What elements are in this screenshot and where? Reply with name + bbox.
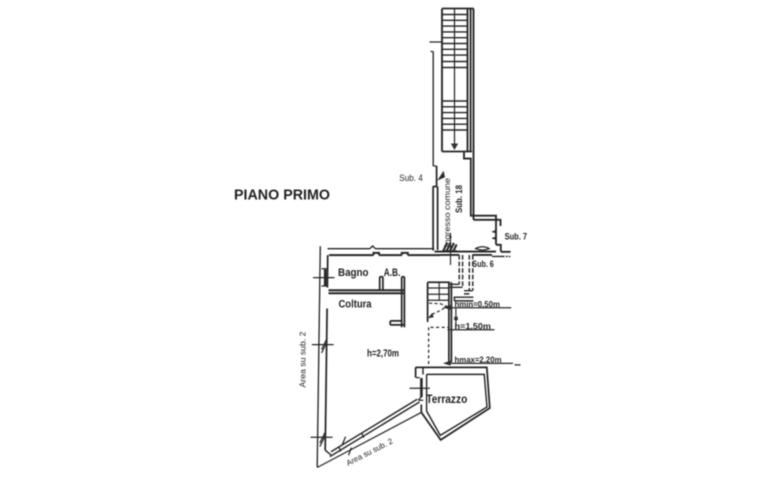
svg-text:Sub. 18: Sub. 18 [454,185,464,213]
svg-text:hmax=2,20m: hmax=2,20m [455,354,502,364]
svg-text:Area su sub. 2: Area su sub. 2 [345,436,395,467]
svg-text:PIANO PRIMO: PIANO PRIMO [234,187,330,204]
svg-text:h=1,50m: h=1,50m [455,321,492,331]
svg-text:Coltura: Coltura [339,299,373,311]
svg-text:h=2,70m: h=2,70m [367,348,399,360]
svg-text:Sub. 7: Sub. 7 [505,232,527,243]
svg-text:Area su sub. 2: Area su sub. 2 [299,331,308,388]
svg-text:Sub. 4: Sub. 4 [399,173,423,184]
svg-text:hmin=0,50m: hmin=0,50m [455,299,501,309]
svg-text:Terrazzo: Terrazzo [426,394,467,406]
svg-text:Sub. 6: Sub. 6 [472,259,494,270]
svg-text:A.B.: A.B. [384,267,401,279]
svg-text:Bagno: Bagno [338,267,369,279]
